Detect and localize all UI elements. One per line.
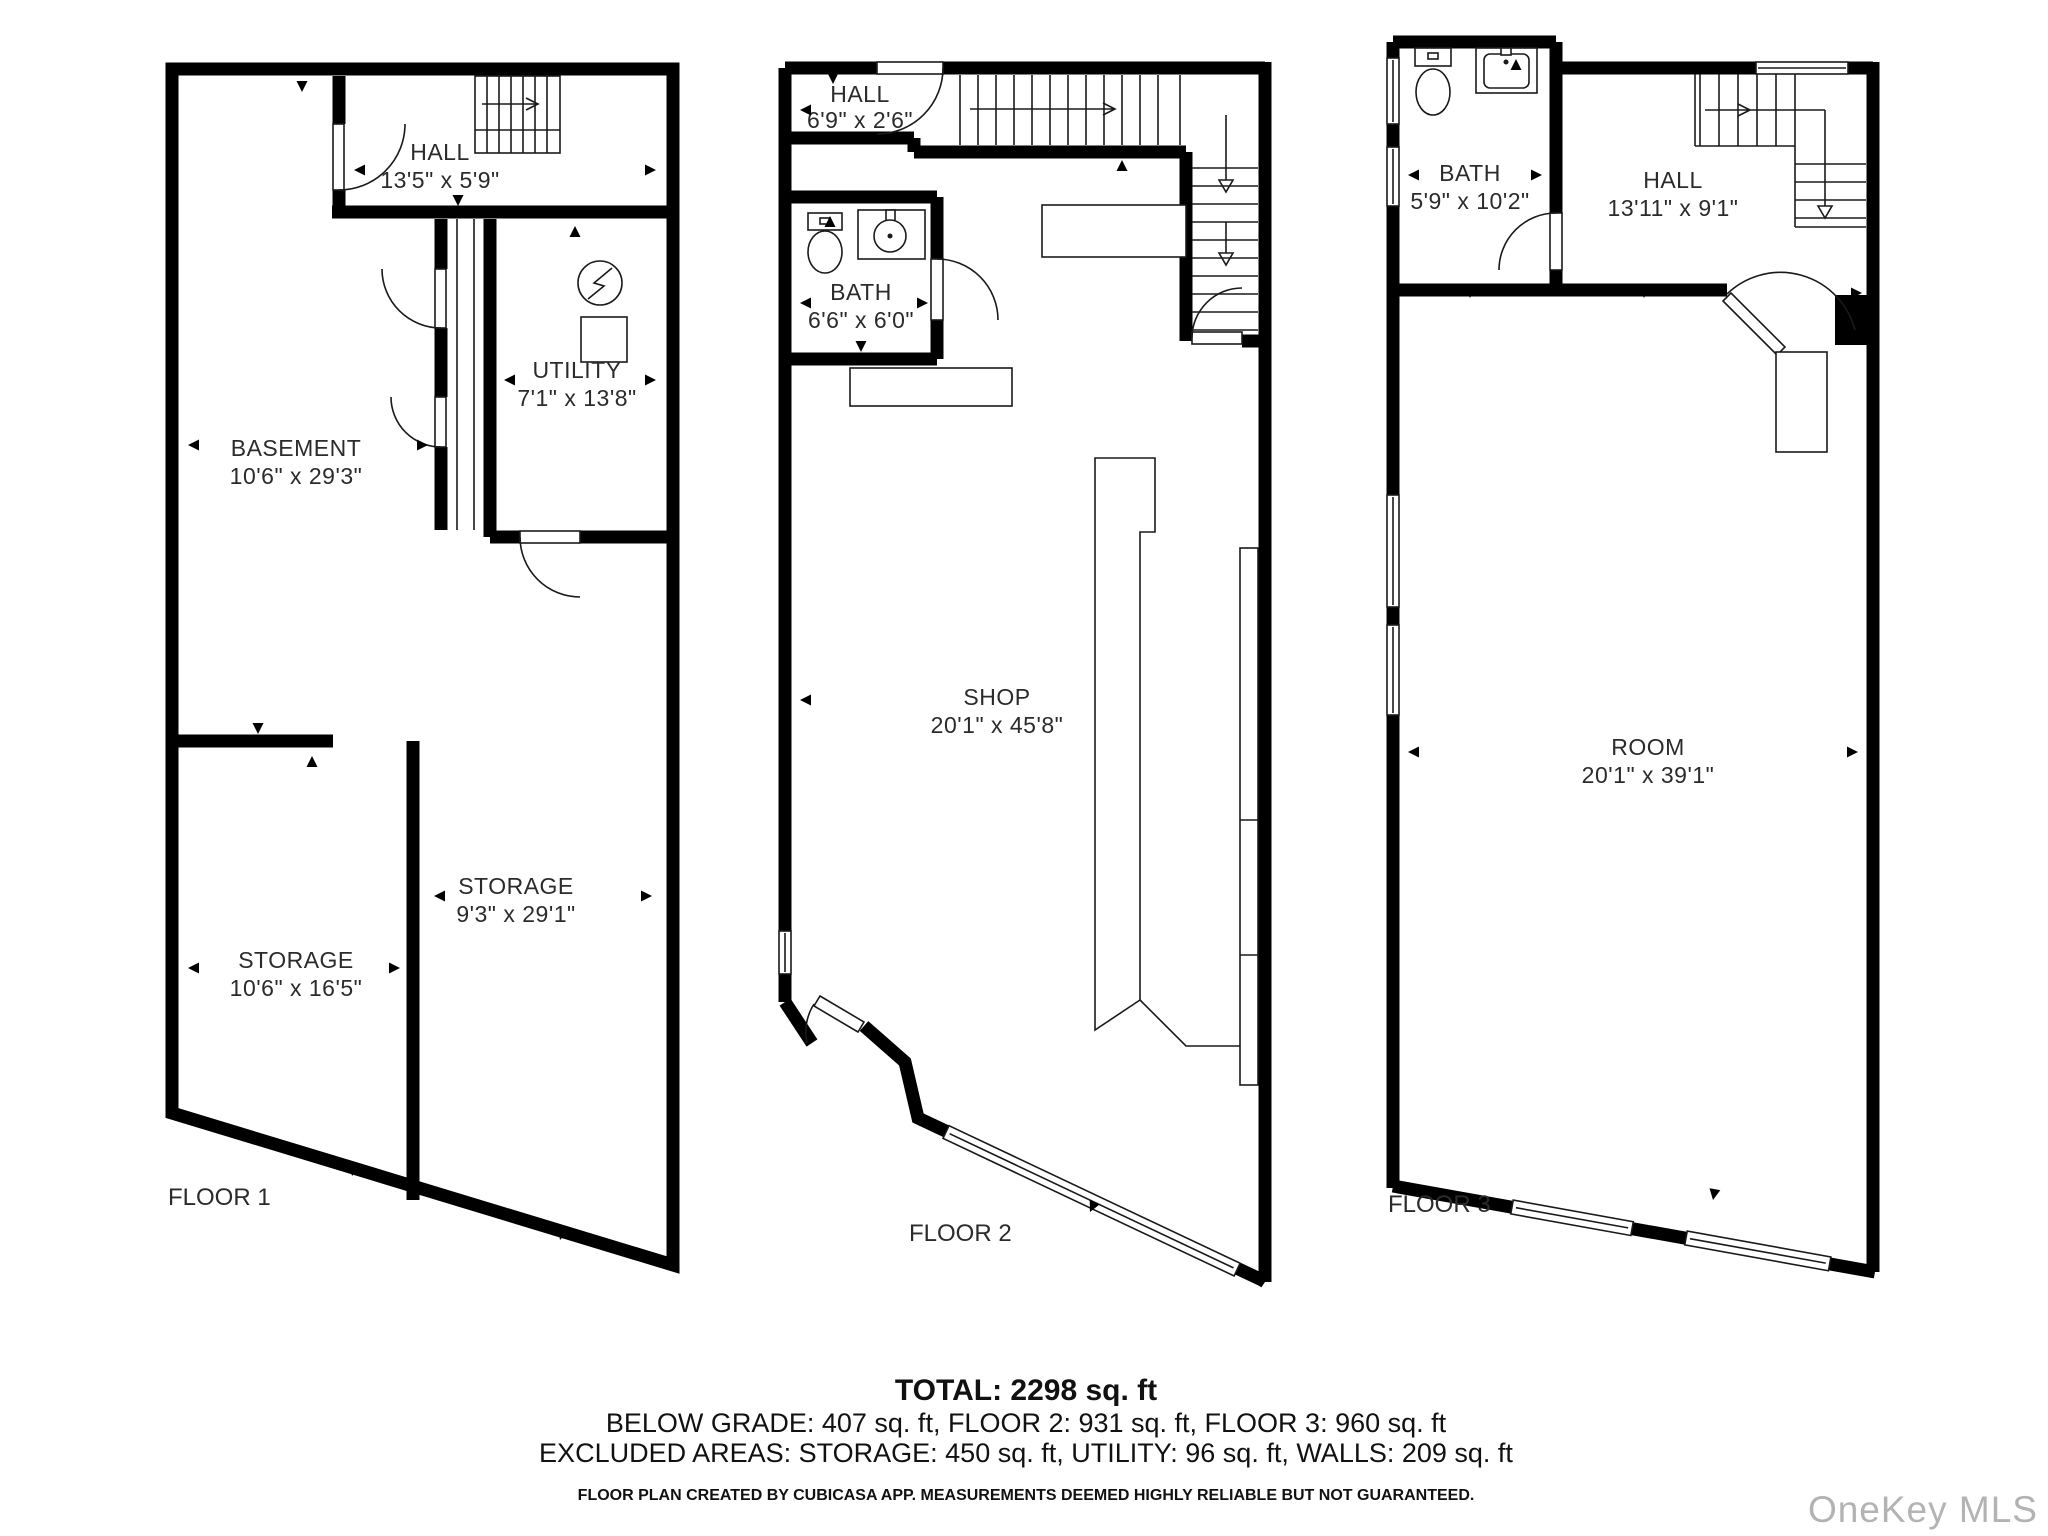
room-label-f2-hall: HALL	[830, 81, 890, 107]
room-label-f1-storage-right: STORAGE	[458, 873, 574, 899]
toilet-icon-f3	[1415, 48, 1451, 115]
room-closet-icon	[1776, 352, 1827, 452]
floor1-label: FLOOR 1	[168, 1184, 271, 1211]
summary-total: TOTAL: 2298 sq. ft	[895, 1374, 1157, 1407]
summary-breakdown: BELOW GRADE: 407 sq. ft, FLOOR 2: 931 sq…	[606, 1408, 1447, 1438]
room-dims-f3-room: 20'1" x 39'1"	[1582, 762, 1715, 788]
room-label-f1-basement: BASEMENT	[231, 435, 362, 461]
floor-plan-canvas: HALL 13'5" x 5'9" BASEMENT 10'6" x 29'3"…	[0, 0, 2048, 1536]
room-label-f1-utility: UTILITY	[532, 357, 621, 383]
floor2-plan: HALL 6'9" x 2'6" BATH 6'6" x 6'0" SHOP 2…	[779, 62, 1265, 1282]
floor3-bath-door	[1499, 213, 1562, 270]
room-dims-f2-hall: 6'9" x 2'6"	[807, 107, 913, 133]
floor1-basement-door-upper	[382, 269, 446, 328]
room-dims-f1-basement: 10'6" x 29'3"	[230, 463, 363, 489]
room-label-f2-bath: BATH	[830, 279, 892, 305]
room-dims-f2-bath: 6'6" x 6'0"	[808, 307, 914, 333]
floor3-slant-window-1	[1511, 1200, 1634, 1235]
room-dims-f1-storage-left: 10'6" x 16'5"	[230, 975, 363, 1001]
floor3-label: FLOOR 3	[1388, 1191, 1491, 1218]
floor2-left-window	[779, 931, 791, 974]
shop-shelves-icon	[1240, 548, 1258, 1085]
floor2-stair-base-door	[1192, 288, 1242, 344]
room-label-f3-bath: BATH	[1439, 160, 1501, 186]
room-label-f1-hall: HALL	[410, 139, 470, 165]
floor2-stairs-icon	[960, 75, 1258, 330]
floor1-interior-walls	[172, 76, 673, 1200]
room-dims-f3-bath: 5'9" x 10'2"	[1410, 188, 1529, 214]
watermark-onekey-mls: OneKey MLS	[1808, 1489, 2038, 1530]
room-label-f3-room: ROOM	[1611, 734, 1685, 760]
floor-plan-page: HALL 13'5" x 5'9" BASEMENT 10'6" x 29'3"…	[0, 0, 2048, 1536]
shop-counter-small-icon	[850, 368, 1012, 406]
utility-equipment-box-icon	[581, 317, 627, 362]
floor1-outer-walls	[172, 69, 673, 1265]
floor3-slant-window-2	[1685, 1231, 1831, 1271]
floor1-plan: HALL 13'5" x 5'9" BASEMENT 10'6" x 29'3"…	[168, 69, 673, 1265]
toilet-icon-f2	[808, 213, 842, 273]
room-dims-f1-utility: 7'1" x 13'8"	[517, 385, 636, 411]
floor1-utility-door	[520, 531, 580, 597]
sink-icon-f3	[1476, 48, 1537, 93]
shop-counter-under-stairs-icon	[1042, 205, 1186, 257]
room-dims-f2-shop: 20'1" x 45'8"	[931, 712, 1064, 738]
room-label-f1-storage-left: STORAGE	[238, 947, 354, 973]
room-label-f2-shop: SHOP	[963, 684, 1030, 710]
area-summary: TOTAL: 2298 sq. ft BELOW GRADE: 407 sq. …	[539, 1374, 1513, 1504]
summary-disclaimer: FLOOR PLAN CREATED BY CUBICASA APP. MEAS…	[578, 1487, 1475, 1504]
floor2-outer-walls	[785, 62, 1265, 1282]
room-dims-f3-hall: 13'11" x 9'1"	[1608, 195, 1739, 221]
floor2-bath-door	[931, 259, 998, 320]
room-label-f3-hall: HALL	[1643, 167, 1703, 193]
room-dims-f1-hall: 13'5" x 5'9"	[380, 167, 499, 193]
summary-excluded: EXCLUDED AREAS: STORAGE: 450 sq. ft, UTI…	[539, 1438, 1513, 1468]
shop-counter-long-icon	[1095, 458, 1240, 1046]
sink-icon-f2	[858, 210, 925, 259]
floor2-label: FLOOR 2	[909, 1220, 1012, 1247]
room-dims-f1-storage-right: 9'3" x 29'1"	[456, 901, 575, 927]
floor3-plan: BATH 5'9" x 10'2" HALL 13'11" x 9'1" ROO…	[1387, 42, 1875, 1272]
floor1-shaft-lines	[457, 219, 474, 530]
floor1-basement-door-lower	[391, 397, 446, 447]
floor1-stairs-icon	[475, 76, 560, 153]
electrical-panel-icon	[578, 261, 622, 305]
